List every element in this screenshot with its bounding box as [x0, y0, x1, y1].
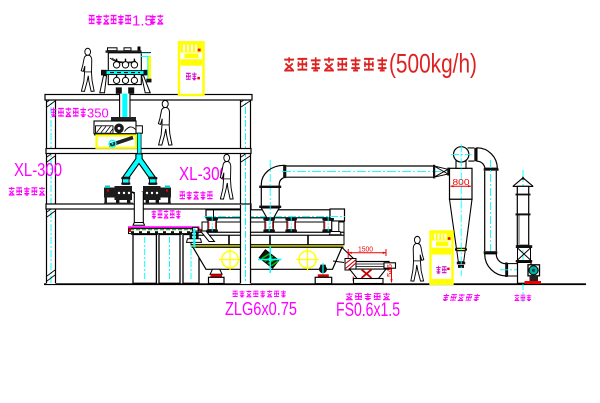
svg-text:(500kg/h): (500kg/h) [389, 49, 477, 79]
svg-text:1500: 1500 [358, 245, 373, 254]
svg-text:XL-300: XL-300 [179, 164, 228, 184]
svg-text:546: 546 [387, 264, 394, 277]
svg-text:350: 350 [87, 106, 109, 121]
svg-text:XL-300: XL-300 [14, 160, 62, 180]
svg-text:800: 800 [453, 178, 471, 187]
svg-text:ZLG6x0.75: ZLG6x0.75 [225, 299, 297, 319]
svg-text:FS0.6x1.5: FS0.6x1.5 [336, 300, 400, 321]
svg-text:1.5: 1.5 [132, 13, 153, 30]
